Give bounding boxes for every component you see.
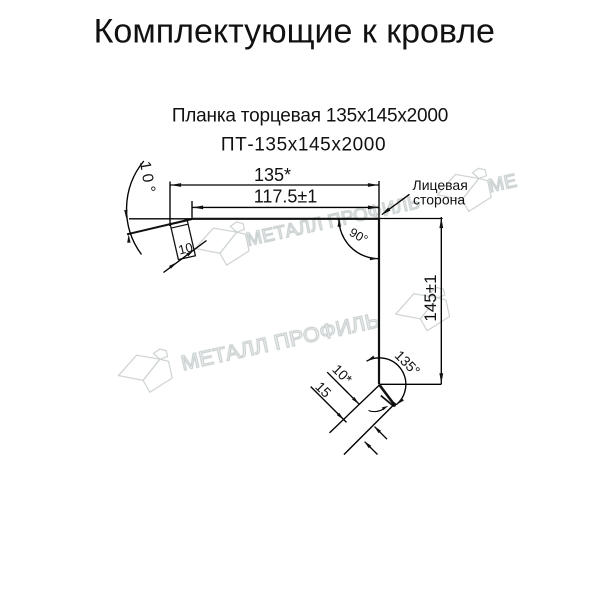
- svg-text:сторона: сторона: [413, 191, 465, 207]
- svg-text:145±1: 145±1: [421, 274, 440, 321]
- svg-text:ПТ-135х145х2000: ПТ-135х145х2000: [221, 135, 386, 156]
- svg-text:135*: 135*: [254, 165, 291, 185]
- svg-text:Комплектующие к кровле: Комплектующие к кровле: [94, 12, 495, 50]
- svg-text:117.5±1: 117.5±1: [254, 186, 318, 206]
- svg-text:15: 15: [312, 378, 334, 400]
- svg-text:10*: 10*: [329, 361, 356, 388]
- svg-text:10°: 10°: [136, 160, 159, 198]
- svg-text:МЕТАЛЛ ПРОФИЛЬ: МЕТАЛЛ ПРОФИЛЬ: [179, 308, 382, 375]
- svg-text:135°: 135°: [392, 347, 424, 379]
- svg-text:90°: 90°: [347, 225, 370, 247]
- svg-text:МЕ: МЕ: [486, 170, 518, 197]
- svg-text:Планка торцевая 135х145х2000: Планка торцевая 135х145х2000: [172, 105, 448, 126]
